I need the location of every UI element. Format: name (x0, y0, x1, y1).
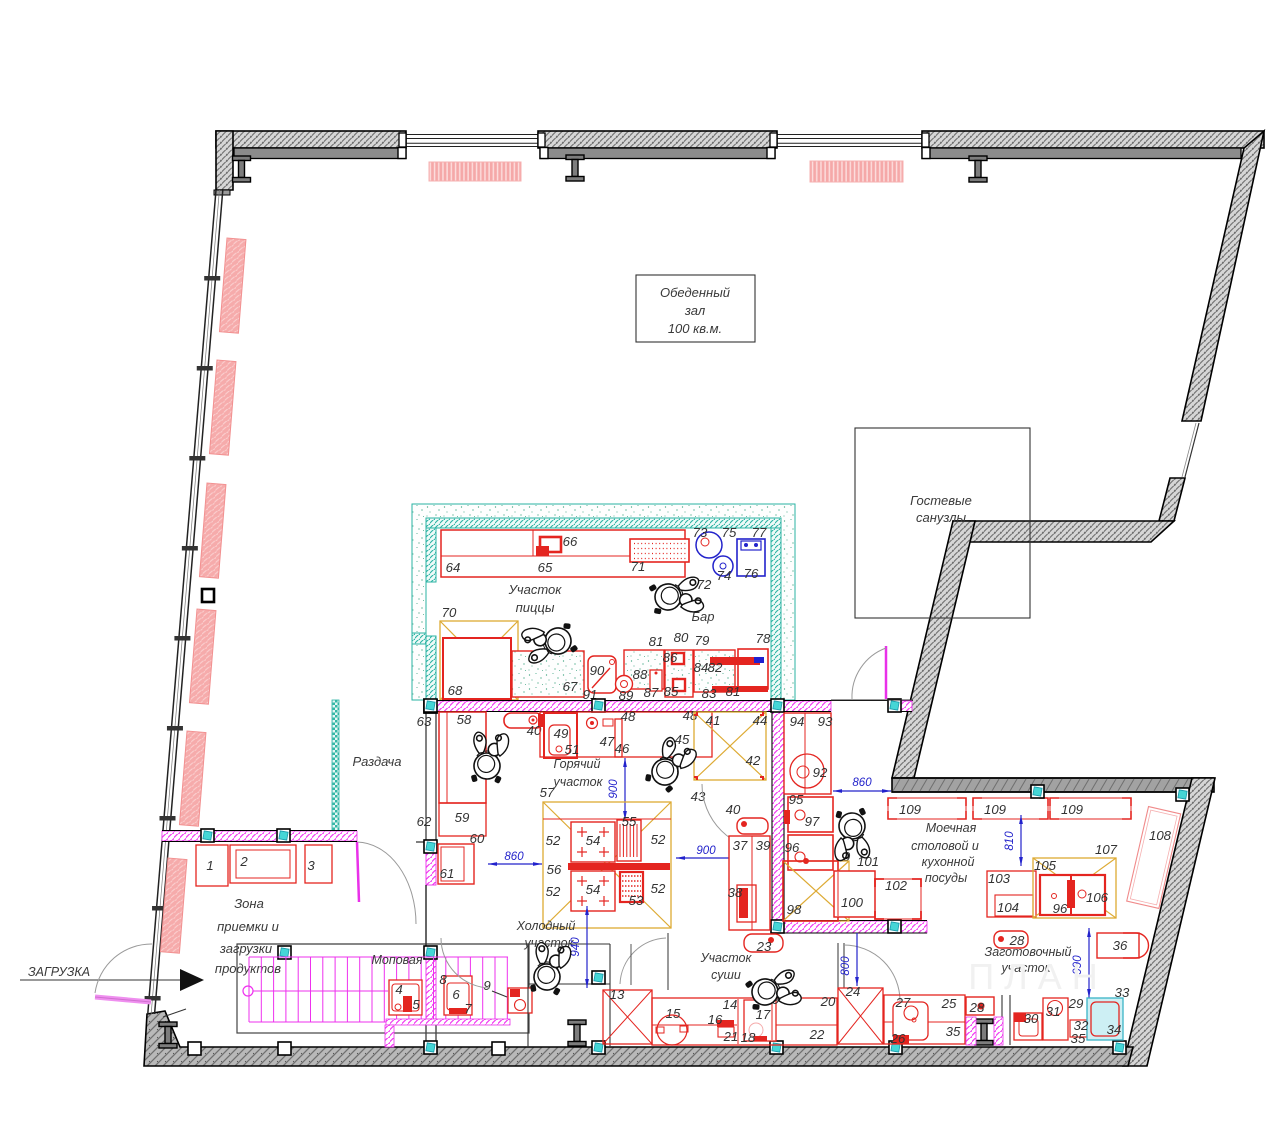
svg-text:кухонной: кухонной (922, 855, 975, 869)
svg-text:105: 105 (1034, 858, 1057, 873)
svg-text:13: 13 (610, 987, 625, 1002)
svg-text:46: 46 (615, 741, 630, 756)
svg-text:96: 96 (785, 840, 800, 855)
svg-text:81: 81 (726, 684, 741, 699)
svg-text:30: 30 (1024, 1011, 1039, 1026)
svg-text:Моповая: Моповая (371, 953, 422, 967)
svg-text:40: 40 (726, 802, 741, 817)
svg-text:35: 35 (946, 1024, 961, 1039)
svg-text:810: 810 (1004, 831, 1016, 851)
svg-text:27: 27 (895, 995, 911, 1010)
svg-text:96: 96 (1053, 901, 1068, 916)
svg-text:загрузки: загрузки (219, 941, 272, 956)
svg-text:4: 4 (395, 982, 402, 997)
svg-text:Горячий: Горячий (554, 757, 601, 771)
svg-text:8: 8 (439, 972, 447, 987)
svg-text:87: 87 (644, 685, 659, 700)
svg-text:Участок: Участок (508, 582, 563, 597)
svg-text:109: 109 (984, 802, 1007, 817)
svg-text:15: 15 (666, 1006, 681, 1021)
svg-text:24: 24 (845, 984, 861, 999)
svg-text:31: 31 (1046, 1004, 1061, 1019)
svg-text:860: 860 (504, 851, 524, 863)
svg-text:109: 109 (899, 802, 922, 817)
svg-text:68: 68 (448, 683, 463, 698)
svg-text:35: 35 (1071, 1031, 1086, 1046)
svg-text:52: 52 (546, 833, 561, 848)
svg-text:Зона: Зона (234, 896, 264, 911)
svg-text:108: 108 (1149, 828, 1172, 843)
svg-text:860: 860 (852, 777, 872, 789)
svg-text:102: 102 (885, 878, 908, 893)
svg-text:16: 16 (708, 1012, 723, 1027)
svg-text:53: 53 (629, 893, 644, 908)
svg-text:Гостевые: Гостевые (910, 493, 972, 508)
svg-text:38: 38 (728, 885, 743, 900)
svg-text:47: 47 (600, 734, 615, 749)
svg-text:зал: зал (684, 303, 706, 318)
svg-text:52: 52 (651, 832, 666, 847)
svg-text:800: 800 (840, 956, 852, 976)
svg-text:20: 20 (820, 994, 836, 1009)
svg-text:88: 88 (633, 667, 648, 682)
svg-text:5: 5 (412, 997, 420, 1012)
svg-text:участок: участок (552, 775, 603, 789)
svg-text:58: 58 (457, 712, 472, 727)
svg-text:6: 6 (452, 987, 460, 1002)
svg-text:98: 98 (787, 902, 802, 917)
svg-text:106: 106 (1086, 890, 1109, 905)
svg-text:28: 28 (969, 1000, 985, 1015)
svg-text:14: 14 (723, 997, 738, 1012)
svg-text:100 кв.м.: 100 кв.м. (668, 321, 722, 336)
svg-text:Холодный: Холодный (516, 919, 576, 933)
svg-text:60: 60 (470, 831, 485, 846)
svg-text:37: 37 (733, 838, 748, 853)
svg-text:940: 940 (570, 937, 582, 957)
svg-text:43: 43 (691, 789, 706, 804)
svg-text:7: 7 (464, 1001, 472, 1016)
svg-text:90: 90 (590, 663, 605, 678)
svg-text:23: 23 (756, 939, 772, 954)
svg-text:столовой и: столовой и (911, 839, 979, 853)
svg-text:2: 2 (239, 854, 248, 869)
svg-text:29: 29 (1068, 996, 1084, 1011)
svg-text:79: 79 (695, 633, 710, 648)
svg-text:48: 48 (621, 709, 636, 724)
svg-text:суши: суши (711, 968, 741, 982)
svg-text:67: 67 (563, 679, 578, 694)
svg-text:52: 52 (651, 881, 666, 896)
svg-text:приемки и: приемки и (217, 919, 279, 934)
svg-text:56: 56 (547, 862, 562, 877)
svg-text:92: 92 (813, 765, 828, 780)
svg-text:95: 95 (789, 792, 804, 807)
svg-text:Моечная: Моечная (926, 821, 977, 835)
svg-text:33: 33 (1115, 985, 1130, 1000)
svg-text:93: 93 (818, 714, 833, 729)
svg-text:104: 104 (997, 900, 1019, 915)
svg-text:посуды: посуды (925, 871, 967, 885)
svg-text:63: 63 (417, 714, 432, 729)
svg-text:900: 900 (696, 845, 716, 857)
svg-text:86: 86 (663, 650, 678, 665)
svg-text:39: 39 (756, 838, 771, 853)
svg-text:81: 81 (649, 634, 664, 649)
svg-text:49: 49 (554, 726, 569, 741)
svg-text:78: 78 (756, 631, 771, 646)
svg-text:21: 21 (723, 1029, 739, 1044)
svg-text:28: 28 (1009, 933, 1025, 948)
svg-text:18: 18 (741, 1030, 756, 1045)
svg-text:57: 57 (540, 785, 555, 800)
svg-text:41: 41 (706, 713, 721, 728)
svg-text:66: 66 (563, 534, 578, 549)
svg-text:пиццы: пиццы (516, 600, 555, 615)
svg-text:54: 54 (586, 833, 601, 848)
svg-text:54: 54 (586, 882, 601, 897)
svg-text:82: 82 (708, 660, 723, 675)
svg-text:42: 42 (746, 753, 761, 768)
svg-text:1: 1 (206, 858, 213, 873)
svg-text:74: 74 (717, 568, 732, 583)
svg-text:103: 103 (988, 871, 1011, 886)
svg-text:59: 59 (455, 810, 470, 825)
svg-text:100: 100 (841, 895, 864, 910)
svg-text:71: 71 (631, 559, 646, 574)
svg-text:85: 85 (664, 684, 679, 699)
svg-text:Раздача: Раздача (352, 754, 401, 769)
svg-text:52: 52 (546, 884, 561, 899)
svg-text:36: 36 (1113, 938, 1128, 953)
svg-text:76: 76 (744, 566, 759, 581)
svg-text:51: 51 (565, 742, 580, 757)
svg-text:70: 70 (442, 605, 457, 620)
svg-text:61: 61 (440, 866, 455, 881)
svg-text:73: 73 (693, 525, 708, 540)
svg-text:продуктов: продуктов (215, 961, 281, 976)
svg-text:900: 900 (608, 779, 620, 799)
svg-text:83: 83 (702, 686, 717, 701)
svg-text:45: 45 (675, 732, 690, 747)
svg-text:62: 62 (417, 814, 432, 829)
svg-text:9: 9 (483, 978, 491, 993)
svg-text:80: 80 (674, 630, 689, 645)
svg-text:72: 72 (697, 577, 712, 592)
svg-text:26: 26 (890, 1031, 906, 1046)
svg-text:94: 94 (790, 714, 805, 729)
svg-text:77: 77 (752, 525, 767, 540)
svg-text:107: 107 (1095, 842, 1118, 857)
svg-text:3: 3 (307, 858, 315, 873)
svg-text:22: 22 (809, 1027, 825, 1042)
svg-text:санузлы: санузлы (916, 510, 966, 525)
svg-text:75: 75 (722, 525, 737, 540)
svg-text:64: 64 (446, 560, 461, 575)
svg-text:97: 97 (805, 814, 820, 829)
svg-text:Обеденный: Обеденный (660, 285, 730, 300)
svg-text:65: 65 (538, 560, 553, 575)
svg-text:ЗАГРУЗКА: ЗАГРУЗКА (28, 965, 90, 979)
svg-text:44: 44 (753, 713, 768, 728)
svg-text:34: 34 (1107, 1022, 1122, 1037)
svg-text:109: 109 (1061, 802, 1084, 817)
svg-text:Участок: Участок (700, 951, 753, 965)
svg-text:84: 84 (694, 660, 709, 675)
svg-text:55: 55 (622, 814, 637, 829)
svg-text:ПЛАН: ПЛАН (968, 956, 1108, 997)
svg-text:25: 25 (941, 996, 957, 1011)
